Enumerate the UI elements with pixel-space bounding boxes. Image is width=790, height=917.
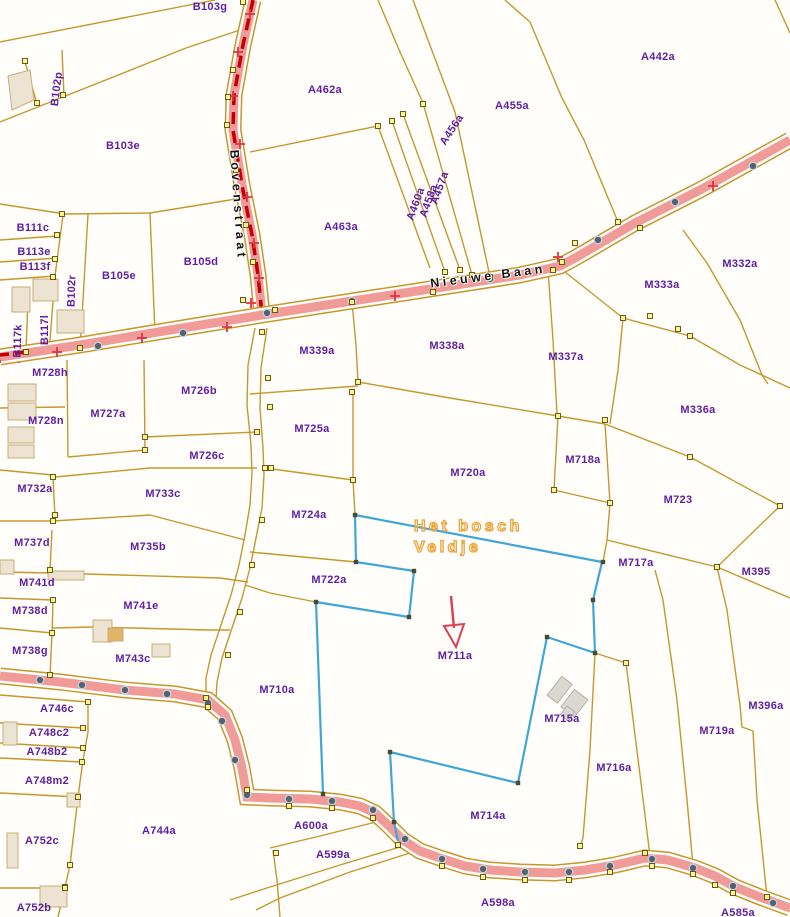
parcel-label-M714a: M714a [470,810,505,822]
parcel-label-M738g: M738g [12,645,48,657]
parcel-label-M724a: M724a [291,509,326,521]
parcel-label-B117k: B117k [11,324,24,358]
road-south [0,676,790,908]
parcel-label-A585a: A585a [721,907,755,917]
cadastral-map[interactable]: Bovenstraat Nieuwe Baan Het bosch Veldje… [0,0,790,917]
parcel-label-A599a: A599a [316,849,350,861]
parcel-label-M726c: M726c [189,450,224,462]
parcel-label-A744a: A744a [142,825,176,837]
outline-vertex-markers [314,513,605,824]
parcel-boundary-lines [0,0,790,917]
parcel-label-B105d: B105d [184,256,219,268]
area-name-line1: Het bosch [414,518,523,536]
parcel-label-M727a: M727a [90,408,125,420]
parcel-label-M396a: M396a [748,700,783,712]
parcel-label-A455a: A455a [495,100,529,112]
parcel-label-M720a: M720a [450,467,485,479]
pointer-arrow [444,596,464,647]
parcel-label-M338a: M338a [429,340,464,352]
parcel-label-M716a: M716a [596,762,631,774]
parcel-label-M737d: M737d [14,537,50,549]
parcel-label-B103e: B103e [106,140,140,152]
parcel-label-M723: M723 [664,494,693,506]
parcel-label-M333a: M333a [644,279,679,291]
parcel-label-M336a: M336a [680,404,715,416]
parcel-label-M743c: M743c [115,653,150,665]
parcel-label-M332a: M332a [722,258,757,270]
parcel-label-A463a: A463a [324,221,358,233]
parcel-label-A748m2: A748m2 [25,775,69,787]
parcel-label-M725a: M725a [294,423,329,435]
parcel-label-A598a: A598a [481,897,515,909]
parcel-label-M715a: M715a [544,713,579,725]
parcel-label-B103g: B103g [193,1,228,13]
parcel-label-M722a: M722a [311,574,346,586]
parcel-label-M711a: M711a [438,650,473,662]
parcel-label-M337a: M337a [548,351,583,363]
parcel-label-M719a: M719a [699,725,734,737]
parcel-label-M726b: M726b [181,385,217,397]
parcel-label-A752c: A752c [25,835,59,847]
parcel-label-M735b: M735b [130,541,166,553]
area-name-line2: Veldje [414,539,481,557]
selection-outline [316,515,602,841]
map-geometry [0,0,790,917]
parcel-label-B117l: B117l [39,315,51,345]
parcel-label-M728h: M728h [32,367,68,379]
parcel-label-M733c: M733c [145,488,180,500]
parcel-label-M738d: M738d [12,605,48,617]
parcel-label-M710a: M710a [259,684,294,696]
parcel-label-M339a: M339a [299,345,334,357]
parcel-label-M732a: M732a [17,483,52,495]
parcel-label-B113e: B113e [17,246,50,258]
parcel-label-M395: M395 [742,566,771,578]
parcel-label-B111c: B111c [17,222,50,234]
parcel-label-A746c: A746c [40,703,74,715]
parcel-label-B105e: B105e [102,270,136,282]
parcel-label-M741e: M741e [123,600,158,612]
parcel-label-M717a: M717a [618,557,653,569]
parcel-label-B102r: B102r [65,275,78,307]
parcel-label-A442a: A442a [641,51,675,63]
parcel-label-M728n: M728n [28,415,64,427]
parcel-label-A748b2: A748b2 [27,746,68,758]
parcel-label-A462a: A462a [308,84,342,96]
parcel-label-A752b: A752b [17,902,52,914]
parcel-label-M718a: M718a [565,454,600,466]
parcel-label-B113f: B113f [20,261,51,273]
parcel-label-A600a: A600a [294,820,328,832]
parcel-label-A748c2: A748c2 [29,727,69,739]
road-symbols [23,0,783,907]
building-footprints [0,70,588,907]
parcel-label-M741d: M741d [19,577,55,589]
